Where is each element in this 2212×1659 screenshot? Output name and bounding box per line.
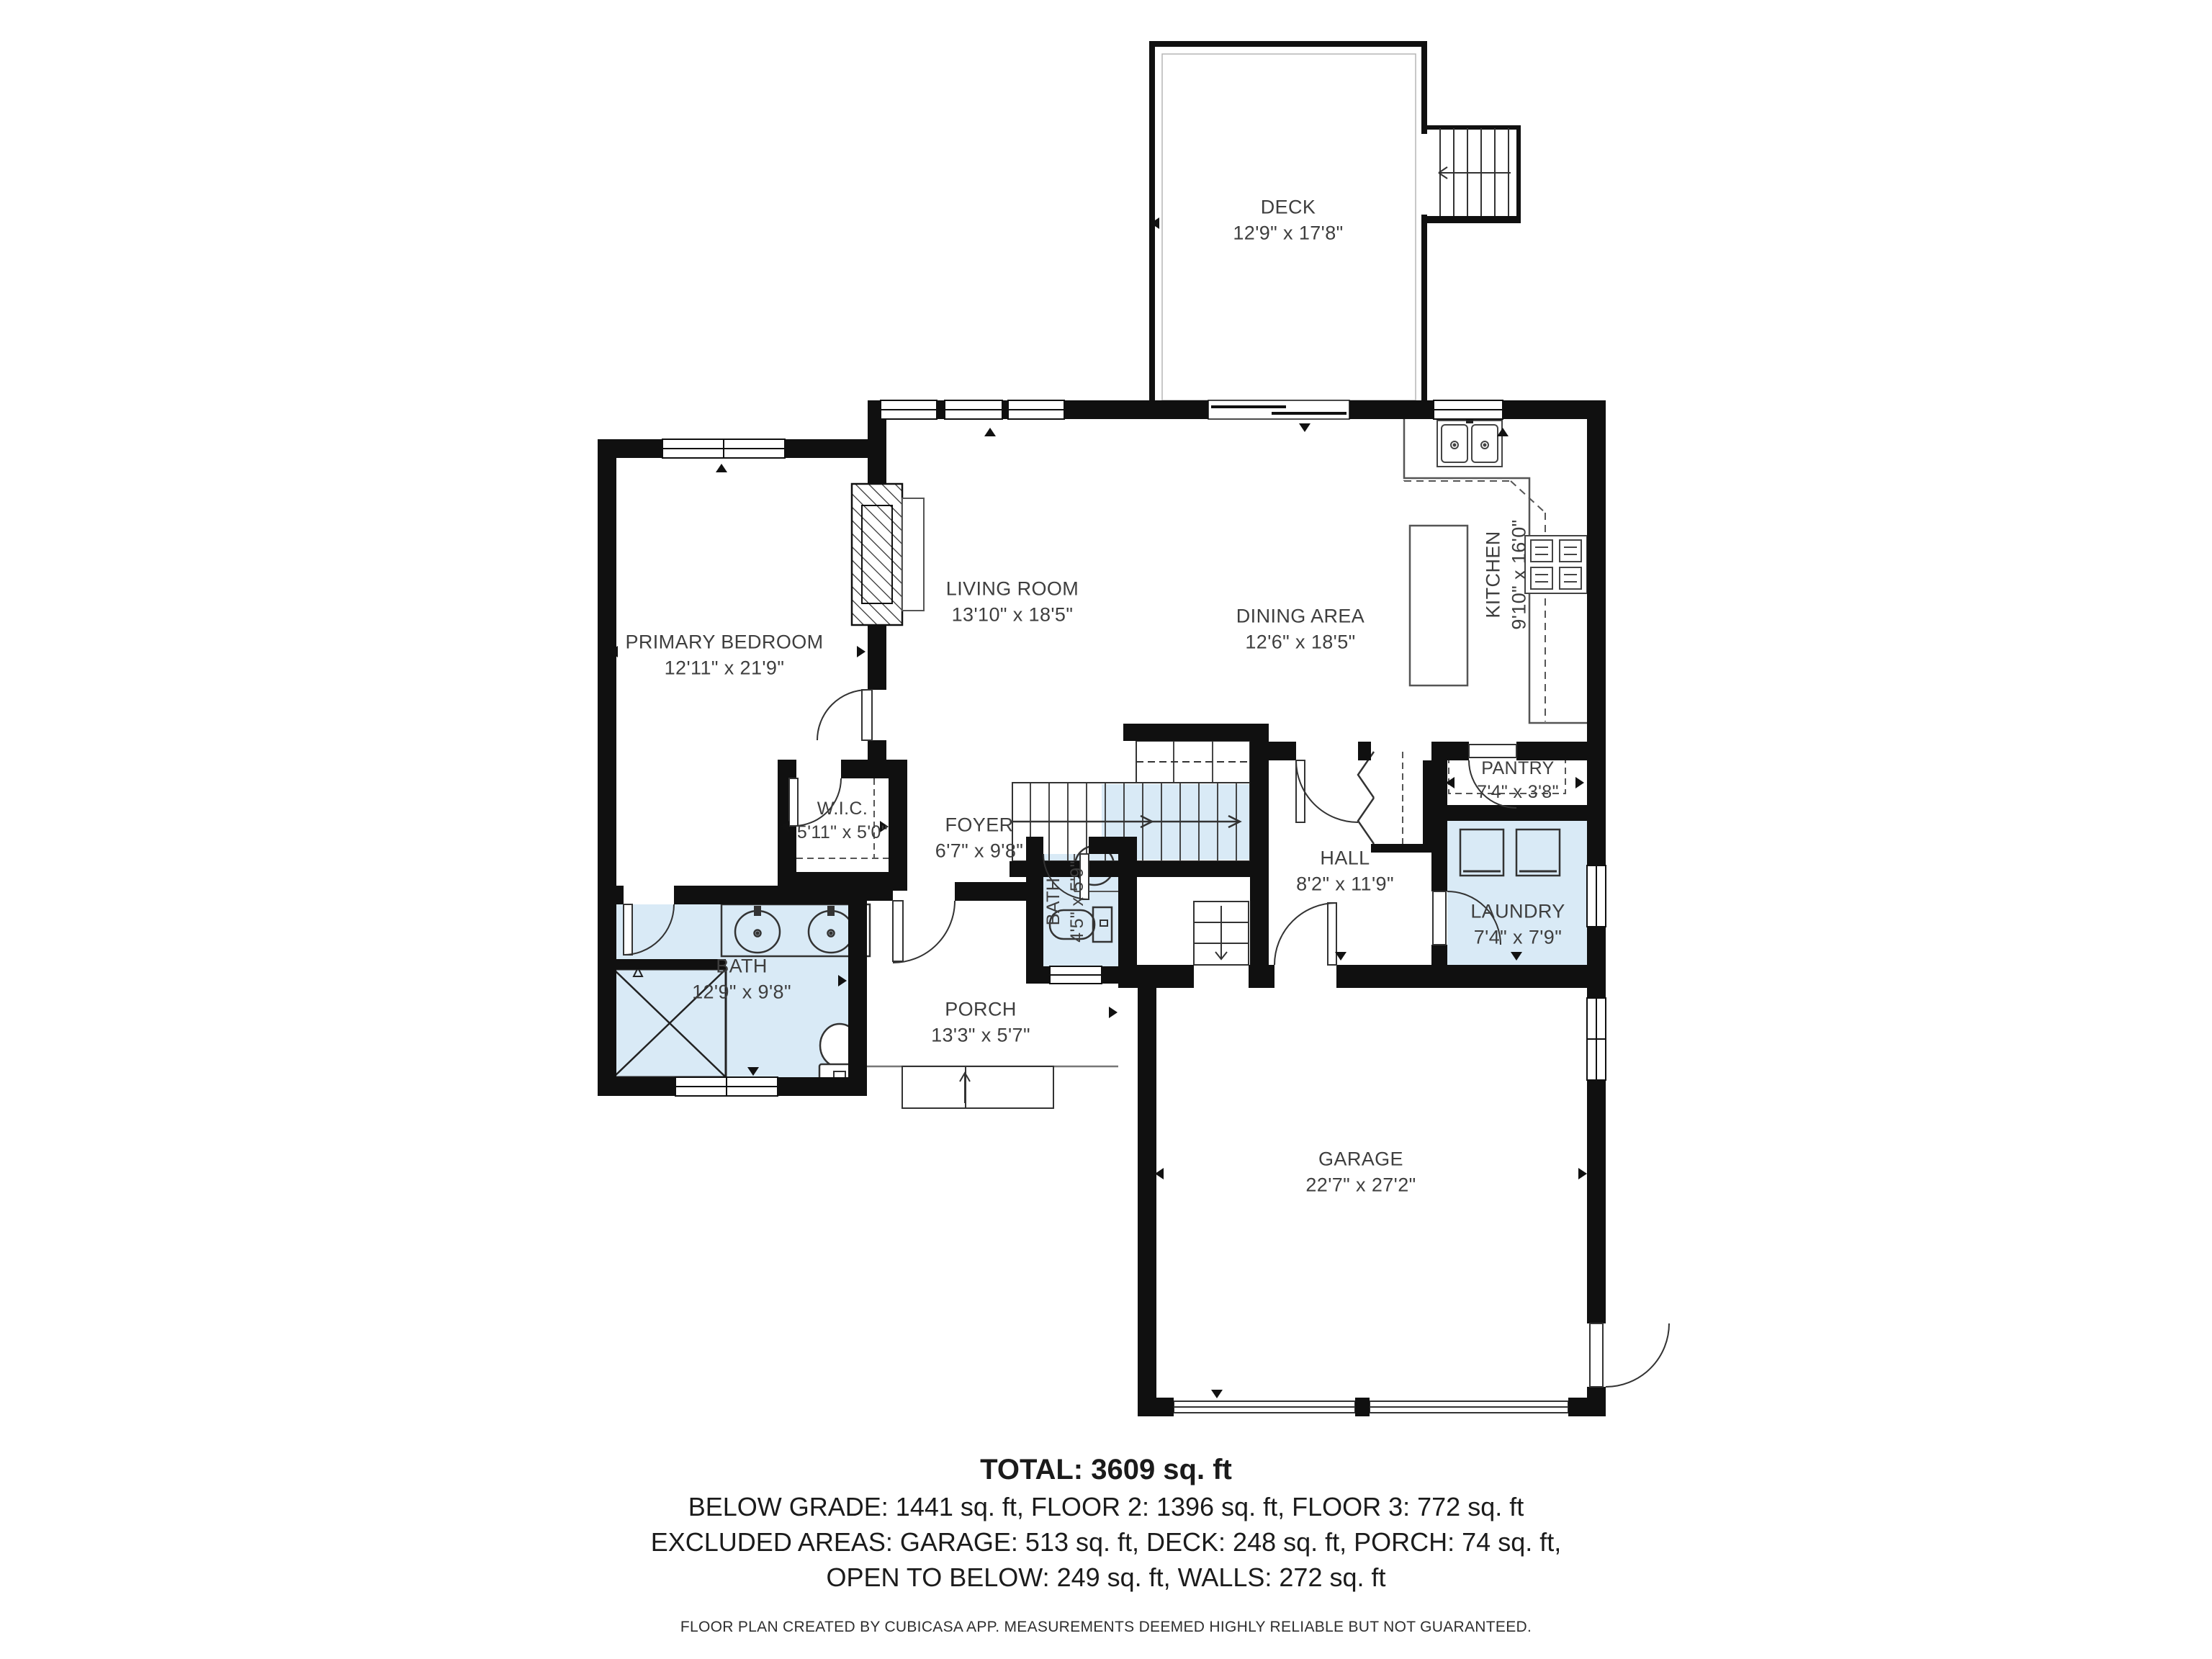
room-name: PORCH [931, 997, 1030, 1022]
room-label-living: LIVING ROOM13'10" x 18'5" [946, 576, 1079, 627]
room-label-primary: PRIMARY BEDROOM12'11" x 21'9" [625, 629, 823, 680]
garage-side-door [1590, 1323, 1669, 1387]
stove-icon [1525, 536, 1587, 593]
room-name: BATH [1042, 860, 1066, 943]
room-dims: 5'11" x 5'0" [797, 821, 888, 845]
open-walls-line: OPEN TO BELOW: 249 sq. ft, WALLS: 272 sq… [0, 1560, 2212, 1595]
room-dims: 12'9" x 17'8" [1233, 220, 1343, 246]
room-label-bath-small: BATH4'5" x 5'9" [1042, 860, 1089, 943]
hall-door [1296, 760, 1358, 822]
room-dims: 13'10" x 18'5" [946, 602, 1079, 628]
hall-closet [1358, 752, 1431, 853]
room-dims: 9'10" x 16'0" [1506, 519, 1532, 629]
room-dims: 7'4" x 7'9" [1470, 925, 1565, 950]
floor-plan-drawing [0, 0, 2212, 1659]
room-dims: 7'4" x 3'8" [1477, 781, 1559, 804]
room-dims: 6'7" x 9'8" [935, 838, 1023, 864]
floor-plan-page: DECK12'9" x 17'8" LIVING ROOM13'10" x 18… [0, 0, 2212, 1659]
room-name: KITCHEN [1480, 519, 1506, 629]
room-label-hall: HALL8'2" x 11'9" [1296, 845, 1394, 896]
room-label-bath: BATH12'9" x 9'8" [692, 953, 791, 1004]
room-name: DINING AREA [1236, 603, 1364, 629]
room-label-wic: W.I.C.5'11" x 5'0" [797, 797, 888, 845]
garage-entry-door [1274, 903, 1336, 965]
excluded-area-line: EXCLUDED AREAS: GARAGE: 513 sq. ft, DECK… [0, 1524, 2212, 1560]
total-area: TOTAL: 3609 sq. ft [0, 1450, 2212, 1489]
room-name: LAUNDRY [1470, 899, 1565, 925]
room-label-foyer: FOYER6'7" x 9'8" [935, 812, 1023, 863]
cubicasa-credit: FLOOR PLAN CREATED BY CUBICASA APP. MEAS… [0, 1619, 2212, 1636]
room-label-deck: DECK12'9" x 17'8" [1233, 194, 1343, 246]
sliding-door [1208, 400, 1349, 419]
room-name: HALL [1296, 845, 1394, 871]
garage-doors [1174, 1401, 1568, 1413]
room-dims: 22'7" x 27'2" [1305, 1172, 1416, 1198]
room-dims: 12'9" x 9'8" [692, 979, 791, 1005]
room-label-kitchen: KITCHEN9'10" x 16'0" [1480, 519, 1532, 629]
room-dims: 4'5" x 5'9" [1066, 860, 1089, 943]
deck-stairs [1424, 125, 1521, 223]
porch-steps [867, 1066, 1118, 1108]
area-summary: TOTAL: 3609 sq. ft BELOW GRADE: 1441 sq.… [0, 1450, 2212, 1595]
floors-area-line: BELOW GRADE: 1441 sq. ft, FLOOR 2: 1396 … [0, 1489, 2212, 1524]
hall-steps [1194, 902, 1249, 965]
room-name: LIVING ROOM [946, 576, 1079, 602]
room-name: PANTRY [1477, 757, 1559, 781]
room-name: W.I.C. [797, 797, 888, 821]
room-label-dining: DINING AREA12'6" x 18'5" [1236, 603, 1364, 655]
room-label-garage: GARAGE22'7" x 27'2" [1305, 1146, 1416, 1197]
room-name: PRIMARY BEDROOM [625, 629, 823, 655]
room-dims: 8'2" x 11'9" [1296, 871, 1394, 897]
room-label-porch: PORCH13'3" x 5'7" [931, 997, 1030, 1048]
fireplace [852, 484, 924, 625]
front-door [893, 901, 955, 963]
room-name: DECK [1233, 194, 1343, 220]
kitchen-island [1410, 526, 1467, 685]
room-name: GARAGE [1305, 1146, 1416, 1172]
room-dims: 12'11" x 21'9" [625, 655, 823, 681]
bedroom-door [817, 690, 872, 740]
room-label-pantry: PANTRY7'4" x 3'8" [1477, 757, 1559, 804]
room-dims: 13'3" x 5'7" [931, 1022, 1030, 1048]
room-name: FOYER [935, 812, 1023, 838]
room-dims: 12'6" x 18'5" [1236, 629, 1364, 655]
room-name: BATH [692, 953, 791, 979]
room-label-laundry: LAUNDRY7'4" x 7'9" [1470, 899, 1565, 950]
stairs-upper [1136, 741, 1250, 783]
